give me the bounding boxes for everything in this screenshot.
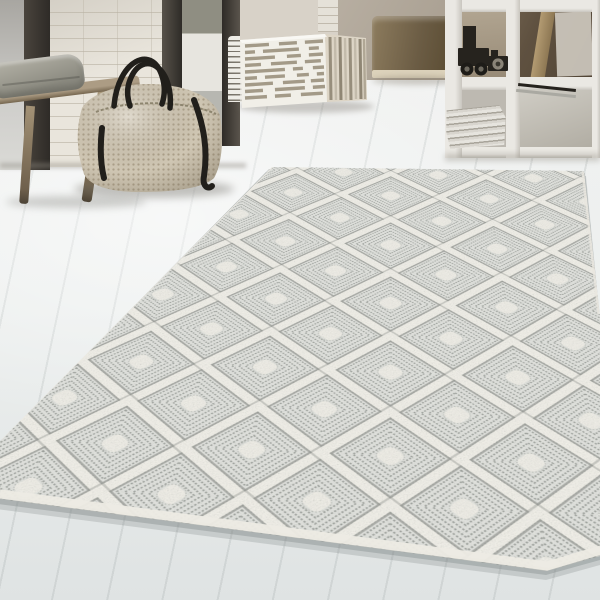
interior-scene xyxy=(0,0,600,600)
camera-lens-center xyxy=(496,62,501,67)
newspaper-stack xyxy=(445,105,506,149)
white-sheet xyxy=(555,11,593,76)
woven-duffel-bag xyxy=(66,42,238,196)
truck-body xyxy=(458,48,489,66)
truck-hub-right xyxy=(478,66,483,71)
shelf-floor-shadow xyxy=(445,154,600,161)
bag-strap-left xyxy=(101,128,104,178)
truck-hub-left xyxy=(464,66,469,71)
shelf-board-top xyxy=(445,0,600,12)
shelf-cell-backdrop-bottom-right xyxy=(520,90,592,148)
toy-truck-and-camera xyxy=(458,20,510,78)
shelf-post-right xyxy=(592,0,600,158)
striped-cube-pouf xyxy=(236,28,370,152)
camera-knob xyxy=(491,50,498,57)
